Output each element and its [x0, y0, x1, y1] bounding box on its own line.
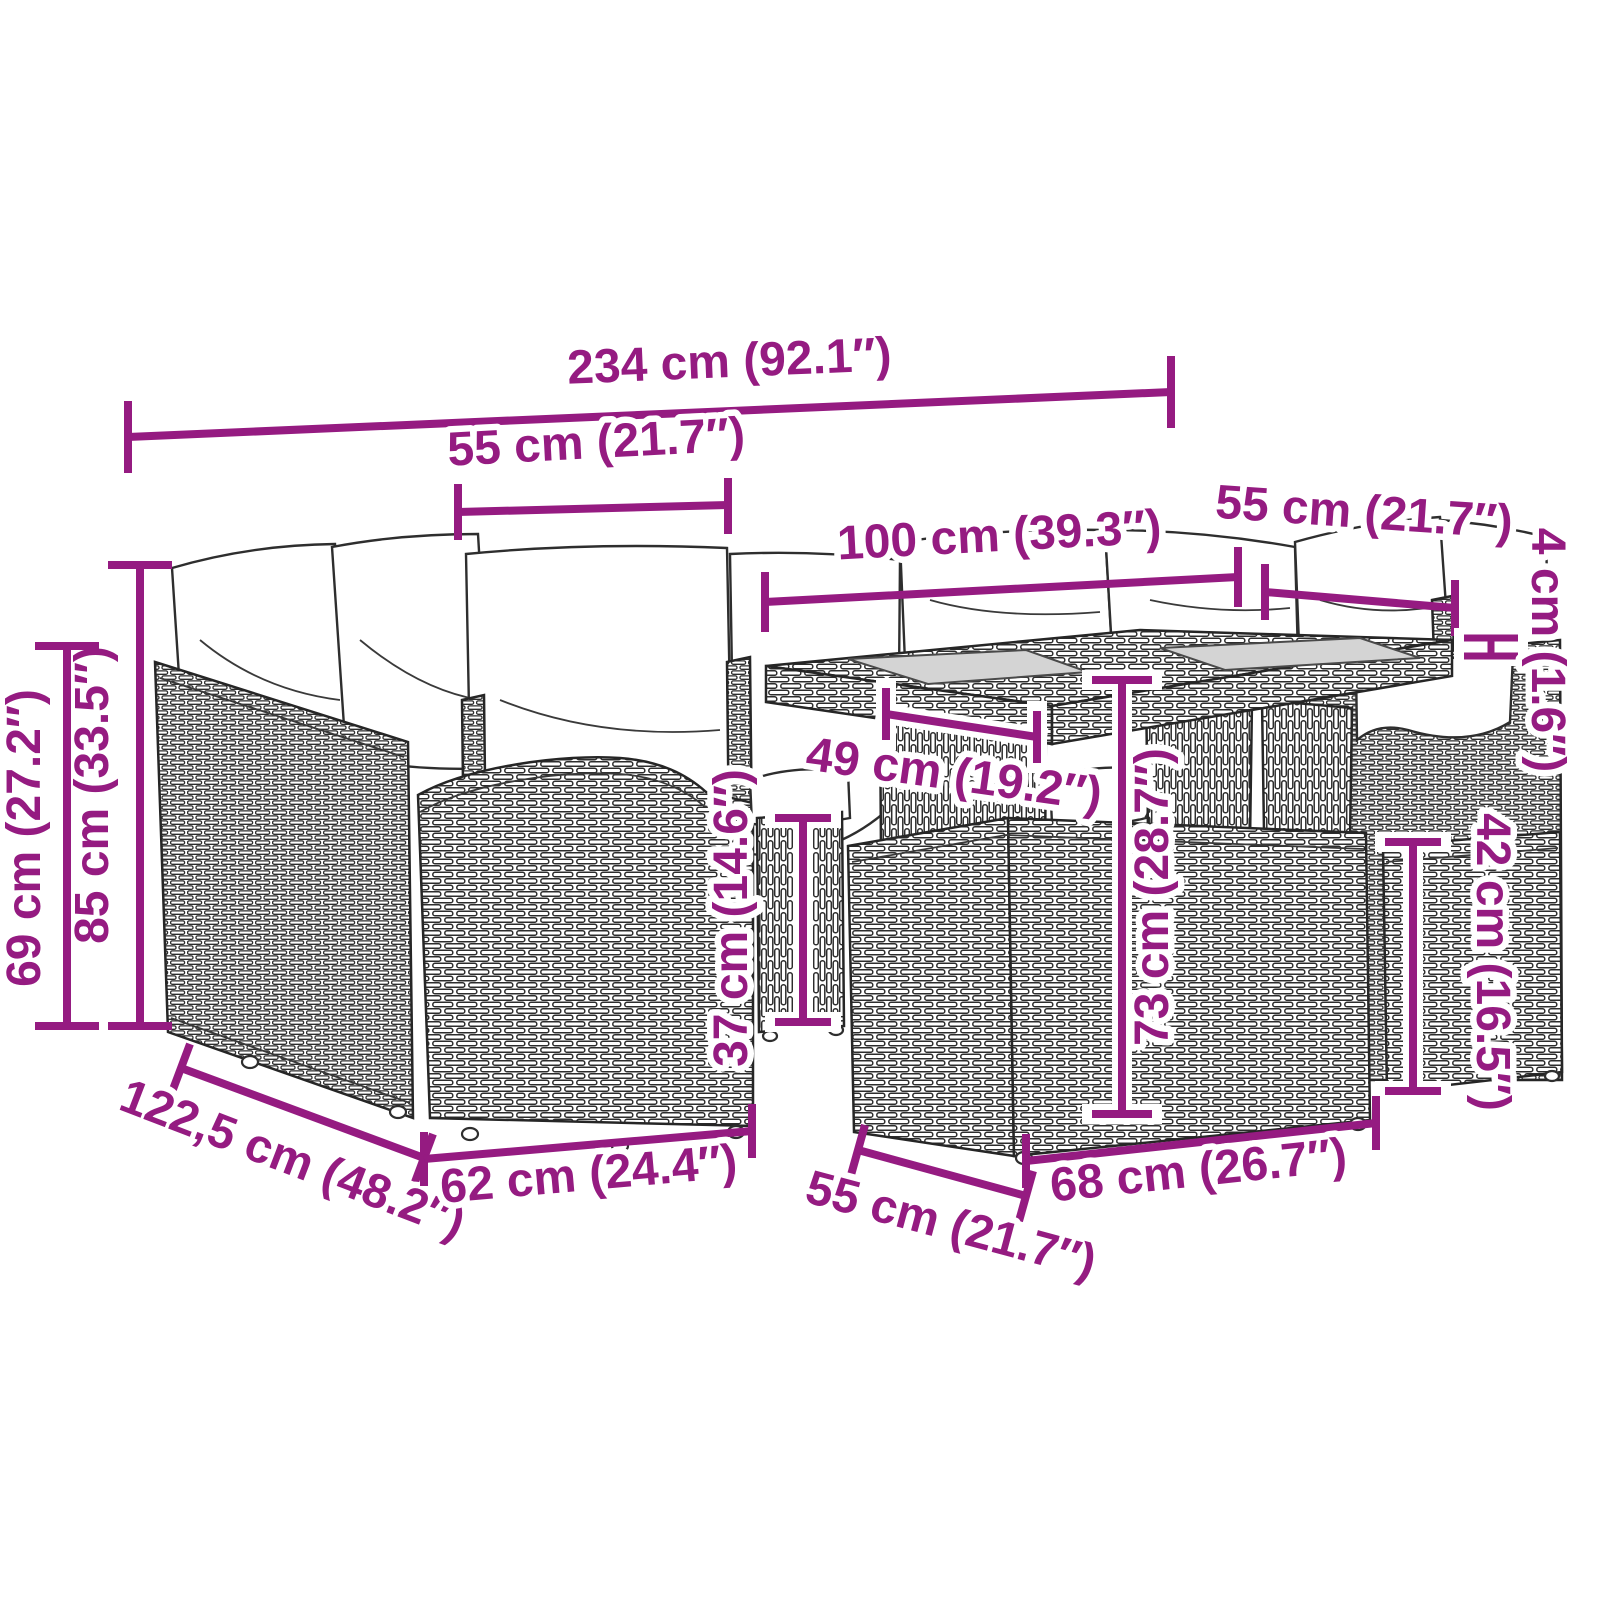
- dimension-label: 37 cm (14.6″): [705, 769, 758, 1067]
- stool-front-face: [1008, 818, 1370, 1156]
- dimension-label: 55 cm (21.7″): [1214, 476, 1515, 550]
- dimension-label: 62 cm (24.4″): [438, 1135, 739, 1214]
- diagram-canvas: 234 cm (92.1″) 55 cm (21.7″) 100 cm (39.…: [0, 0, 1600, 1600]
- dimension-label: 69 cm (27.2″): [0, 689, 51, 987]
- dimension-backrest-height: 85 cm (33.5″): [66, 565, 172, 1026]
- table-leg: [1262, 700, 1352, 840]
- furniture-illustration: [155, 517, 1562, 1164]
- dimension-label: 73 cm (28.7″): [1126, 748, 1179, 1046]
- armrest-side-panel: [155, 662, 413, 1118]
- dimension-label: 234 cm (92.1″): [566, 328, 892, 395]
- dimension-diagram: 234 cm (92.1″) 55 cm (21.7″) 100 cm (39.…: [0, 0, 1600, 1600]
- stool-left-face: [848, 818, 1014, 1156]
- dimension-label: 42 cm (16.5″): [1466, 813, 1519, 1111]
- dimension-label: 85 cm (33.5″): [66, 646, 119, 944]
- seat-front: [418, 757, 753, 1126]
- dimension-label: 4 cm (1.6″): [1521, 528, 1574, 772]
- dimension-seat-width: 55 cm (21.7″): [446, 408, 746, 540]
